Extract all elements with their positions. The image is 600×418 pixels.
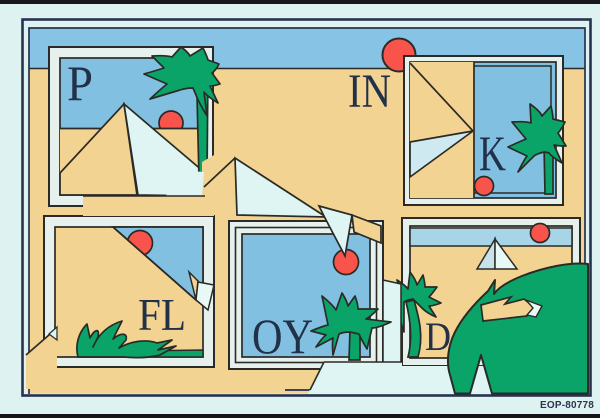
svg-text:FL: FL bbox=[138, 289, 186, 340]
svg-text:IN: IN bbox=[348, 65, 391, 118]
svg-text:P: P bbox=[67, 55, 93, 111]
svg-text:K: K bbox=[479, 125, 506, 181]
svg-text:OY: OY bbox=[252, 308, 313, 364]
svg-text:EOP-80778: EOP-80778 bbox=[540, 400, 594, 411]
svg-text:D: D bbox=[425, 314, 451, 359]
